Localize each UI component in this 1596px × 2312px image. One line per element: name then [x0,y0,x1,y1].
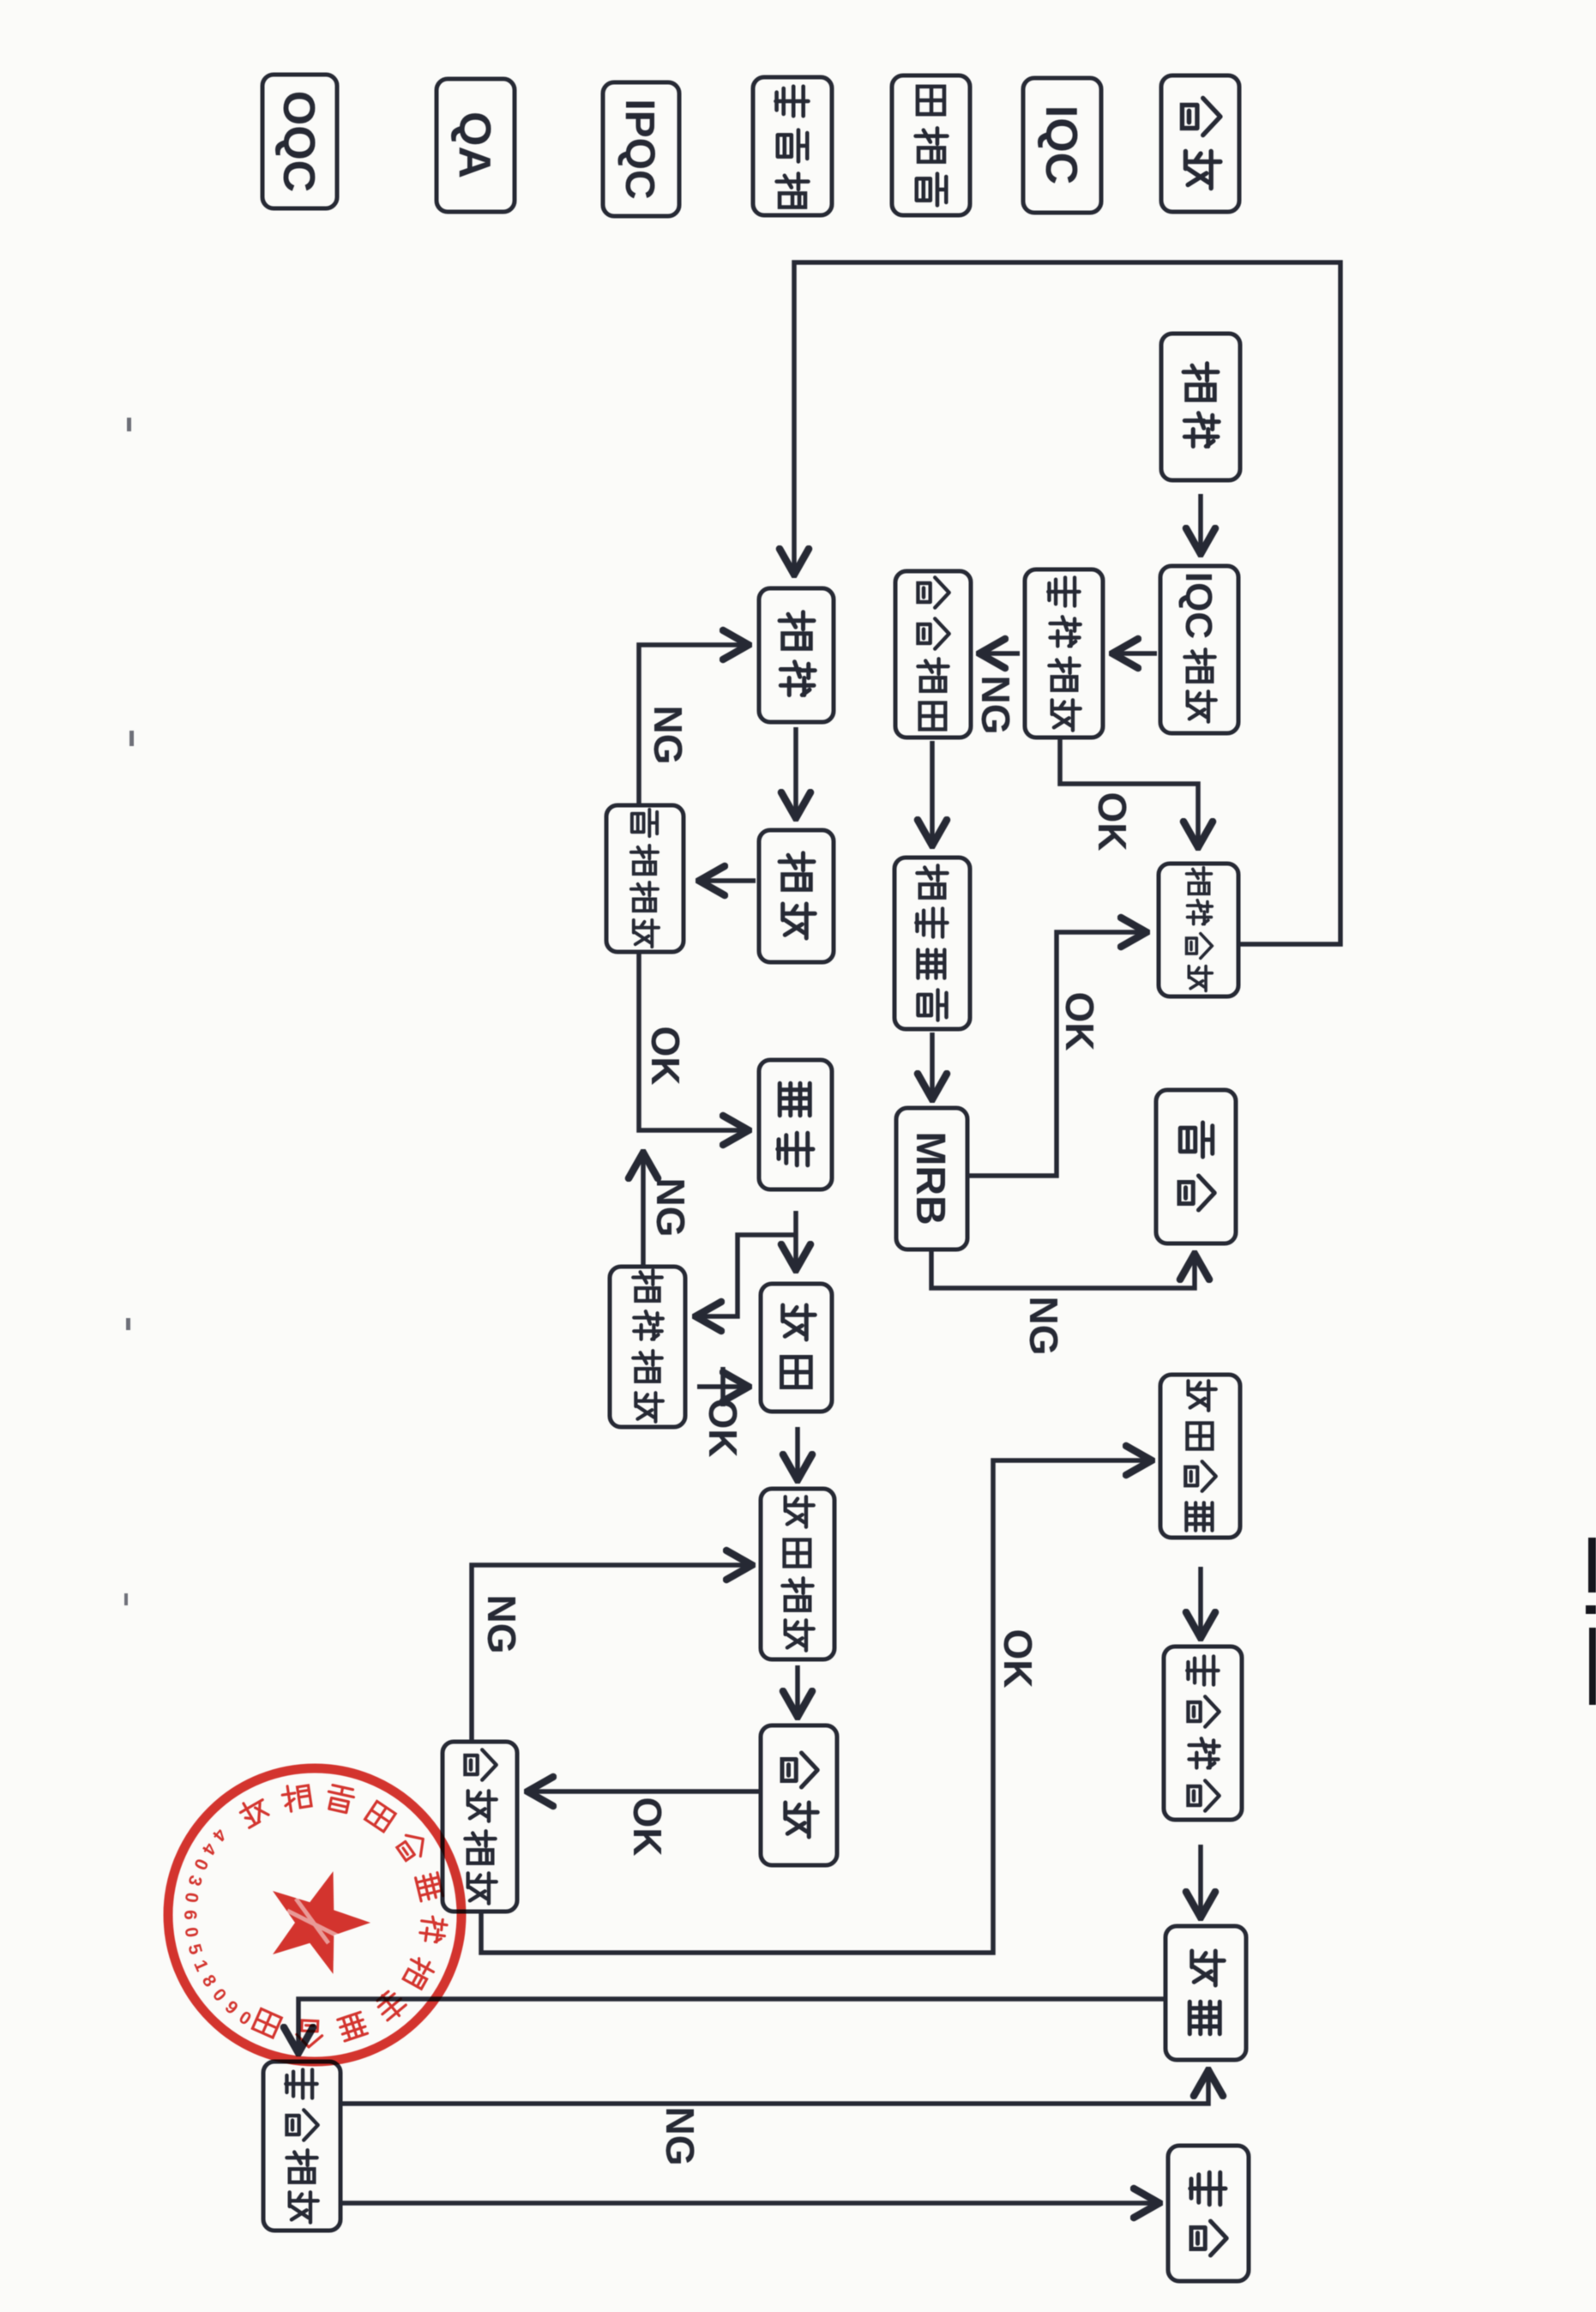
svg-text:OK: OK [643,1027,688,1086]
svg-text:IQC: IQC [1036,105,1086,184]
svg-text:NG: NG [1021,1297,1066,1356]
svg-text:OK: OK [1057,992,1102,1051]
svg-text:0: 0 [190,1856,212,1873]
svg-text:4: 4 [208,1825,230,1845]
svg-text:NG: NG [648,1178,693,1237]
svg-text:NG: NG [973,676,1018,735]
svg-text:NG: NG [479,1595,524,1654]
svg-text:6: 6 [180,1910,200,1920]
svg-text:4: 4 [198,1839,220,1858]
svg-text:0: 0 [181,1926,202,1939]
svg-text:QA: QA [449,111,499,178]
svg-text:0: 0 [181,1891,202,1904]
svg-text:0: 0 [208,1985,230,2006]
svg-text:OK: OK [625,1797,670,1857]
svg-text:9: 9 [221,1997,242,2019]
svg-text:OK: OK [701,1399,745,1458]
svg-text:0: 0 [235,2008,255,2030]
svg-text:OK: OK [1090,792,1135,852]
svg-text:5: 5 [184,1942,205,1957]
svg-text:MRB: MRB [907,1131,953,1225]
svg-text:IPQC: IPQC [617,99,662,199]
svg-text:OQC: OQC [274,91,323,192]
svg-text:3: 3 [184,1873,205,1888]
svg-text:NG: NG [646,706,690,765]
svg-text:8: 8 [198,1972,220,1990]
svg-text:NG: NG [658,2107,702,2166]
svg-text:IQC: IQC [1177,572,1220,639]
svg-text:1: 1 [190,1957,212,1974]
svg-text:OK: OK [996,1629,1040,1689]
